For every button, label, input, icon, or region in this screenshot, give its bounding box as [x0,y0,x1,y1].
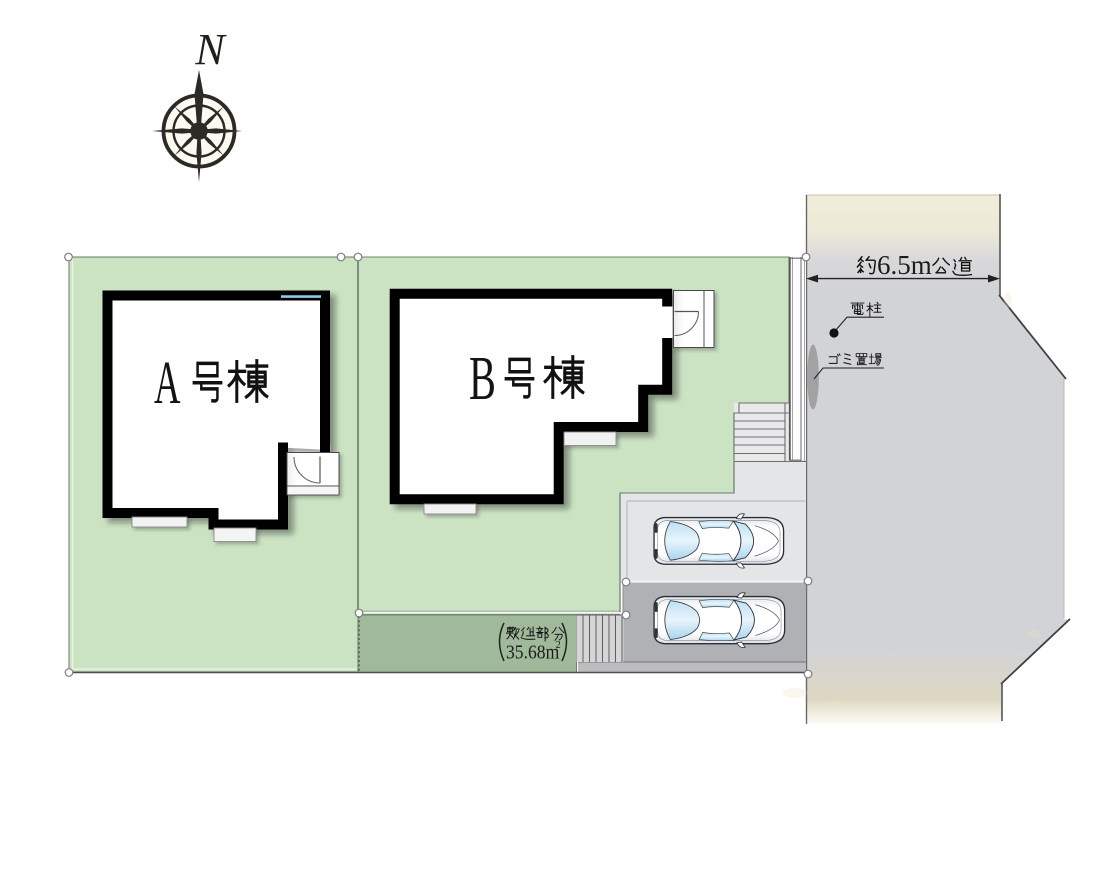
svg-text:2: 2 [556,640,561,651]
svg-text:35.68m: 35.68m [506,642,560,664]
svg-text:N: N [194,25,227,74]
svg-text:6.5m: 6.5m [877,250,932,280]
svg-text:A: A [154,348,180,416]
svg-text:B: B [469,344,496,413]
